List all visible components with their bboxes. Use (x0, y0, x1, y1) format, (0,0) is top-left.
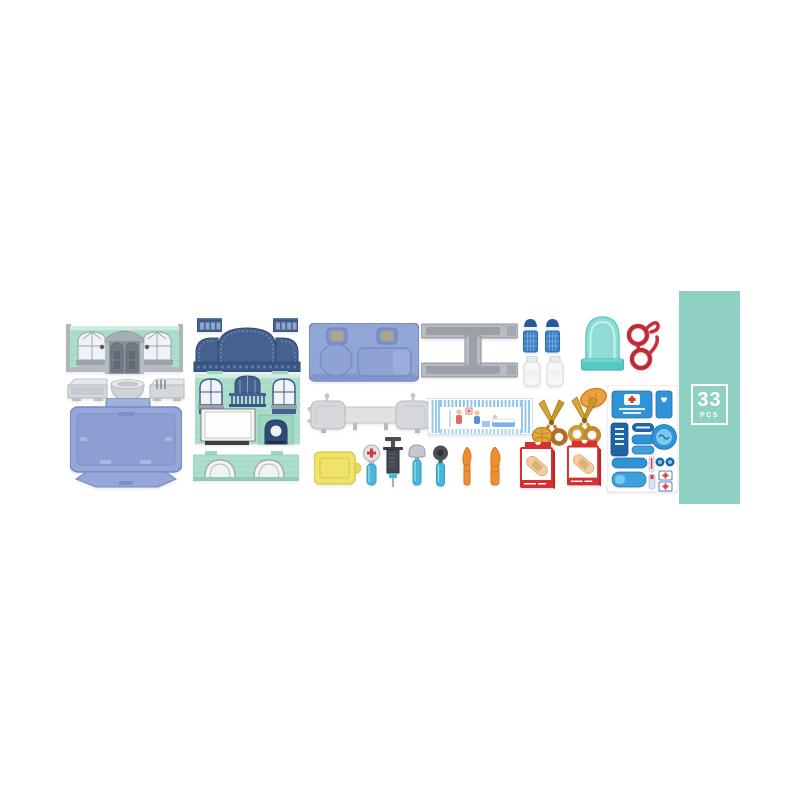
medicine-vial-graphic (522, 318, 539, 353)
sofa-table-set-graphic (307, 393, 434, 435)
piece-sofa-table-set (307, 393, 434, 435)
clinic-wall-graphic (193, 371, 302, 448)
shop-front-wall-graphic (66, 321, 183, 375)
floor-table-circle (320, 344, 352, 376)
sticker-pill (612, 458, 647, 468)
piece-otoscope (361, 443, 382, 487)
scalpel-graphic (458, 447, 475, 486)
floor-sink (327, 328, 347, 344)
sticker-capsule (632, 423, 654, 454)
reflex-hammer-graphic (406, 443, 428, 487)
piece-sticker-sheet (607, 385, 678, 492)
arch-mirror-graphic (581, 314, 624, 376)
floor-sink (377, 328, 397, 344)
piece-medicine-vial-1 (522, 318, 539, 353)
otoscope-graphic (361, 443, 382, 487)
sticker-clock (652, 425, 677, 450)
piece-shop-front-wall (66, 321, 183, 375)
arch-fence-graphic (193, 451, 299, 483)
piece-syringe (383, 437, 403, 487)
piece-magnifier (430, 444, 451, 487)
piece-toy-knife (485, 447, 504, 487)
piece-medicine-vial-2 (544, 318, 561, 353)
piece-room-floor-plate (309, 323, 419, 384)
eyeglasses-graphic (626, 317, 661, 376)
piece-floor-base-plate (70, 398, 182, 489)
magnifier-graphic (430, 444, 451, 487)
pill-bottle-graphic (523, 356, 541, 387)
scissors-graphic (566, 395, 603, 446)
floor-base-plate-graphic (70, 398, 182, 489)
sticker-sheet-graphic (607, 385, 678, 492)
sticker-heart-tag (656, 391, 672, 418)
white-board (201, 409, 255, 445)
arch-pet-door (259, 415, 293, 444)
sticker-medkit-sign (612, 391, 652, 418)
mansard-roof-graphic (192, 322, 302, 372)
piece-toy-scissors-2 (566, 395, 603, 446)
piece-count-unit: PCS (700, 412, 719, 419)
cutting-board-graphic (314, 449, 361, 487)
piece-bandage-box-2 (567, 440, 602, 489)
piece-scalpel (458, 447, 475, 486)
pill-bottle-graphic (546, 356, 564, 387)
sticker-bed (612, 472, 646, 487)
piece-count-banner: 33 PCS (679, 291, 740, 504)
sticker-thermometer (649, 456, 654, 472)
wall-window-right (271, 379, 297, 414)
clinic-awning-graphic (428, 398, 533, 435)
room-floor-plate-graphic (309, 323, 419, 384)
arched-window-left (76, 332, 108, 369)
bed-frame-graphic (421, 321, 518, 380)
sticker-syringe (649, 474, 655, 489)
piece-count-box: 33 PCS (691, 384, 728, 425)
bandage-box-graphic (520, 442, 556, 491)
piece-clinic-wall (193, 371, 302, 448)
piece-eyeglasses (626, 317, 661, 376)
piece-pill-bottle-1 (523, 356, 541, 387)
piece-arch-fence (193, 451, 299, 483)
bandage-box-graphic (567, 440, 602, 489)
piece-cutting-board (314, 449, 361, 487)
piece-arch-mirror (581, 314, 624, 376)
piece-reflex-hammer (406, 443, 428, 487)
medicine-vial-graphic (544, 318, 561, 353)
piece-pill-bottle-2 (546, 356, 564, 387)
sticker-vertical-sign (611, 423, 628, 456)
double-door (100, 331, 149, 374)
product-photo: 33 PCS (0, 0, 800, 800)
syringe-graphic (383, 437, 403, 487)
piece-bandage-box-1 (520, 442, 556, 491)
piece-mansard-roof (192, 322, 302, 372)
toy-knife-graphic (485, 447, 504, 487)
piece-clinic-awning-panel (428, 398, 533, 435)
piece-bed-frame (421, 321, 518, 380)
piece-count-number: 33 (697, 390, 721, 410)
arched-window-right (141, 332, 173, 369)
